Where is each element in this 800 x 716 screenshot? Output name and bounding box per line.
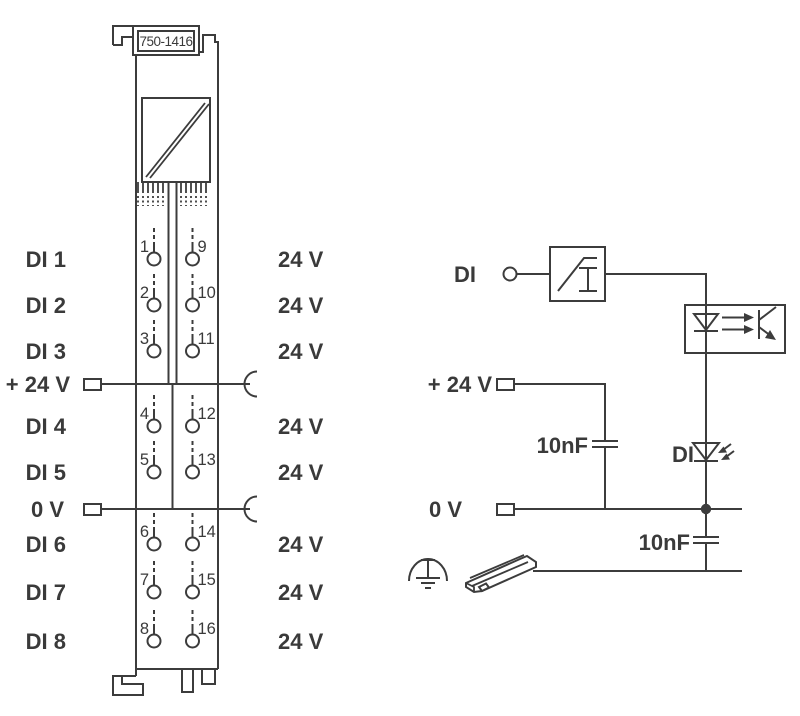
- module-part-number: 750-1416: [139, 34, 192, 49]
- module-foot-middle: [182, 669, 193, 692]
- channel-label: DI 7: [26, 580, 66, 605]
- channel-label: DI 8: [26, 629, 66, 654]
- capacitor-icon: [693, 537, 719, 543]
- flag-connector-24v: [84, 379, 101, 390]
- status-led-label: DI: [672, 442, 694, 467]
- power-row-0v: 0 V: [31, 497, 257, 523]
- schematic-zero-volt-label: 0 V: [429, 497, 462, 522]
- terminal-circle: [148, 420, 161, 433]
- voltage-label: 24 V: [278, 580, 324, 605]
- terminal-number-right: 10: [198, 284, 216, 302]
- voltage-label: 24 V: [278, 293, 324, 318]
- terminal-circle: [148, 538, 161, 551]
- input-terminal-circle: [504, 268, 517, 281]
- channel-label: DI 2: [26, 293, 66, 318]
- io-module: 750-1416 + 24 V 0 V: [6, 26, 324, 695]
- internal-bus-rails-upper: [169, 182, 177, 384]
- voltage-label: 24 V: [278, 629, 324, 654]
- terminal-number-right: 12: [198, 405, 216, 423]
- terminal-number-left: 5: [140, 451, 149, 469]
- channel-row: DI 4 4 12 24 V: [26, 395, 324, 439]
- terminal-circle: [148, 253, 161, 266]
- terminal-circle: [148, 635, 161, 648]
- terminal-number-left: 3: [140, 330, 149, 348]
- terminal-number-left: 4: [140, 405, 149, 423]
- terminal-number-right: 14: [198, 523, 216, 541]
- channel-label: DI 3: [26, 339, 66, 364]
- terminal-number-left: 6: [140, 523, 149, 541]
- optocoupler-icon: [685, 305, 785, 353]
- terminal-circle: [148, 299, 161, 312]
- power-label-0v: 0 V: [31, 497, 64, 522]
- channel-row: DI 7 7 15 24 V: [26, 561, 324, 605]
- terminal-circle: [148, 345, 161, 358]
- voltage-label: 24 V: [278, 339, 324, 364]
- terminal-number-left: 2: [140, 284, 149, 302]
- channel-row: DI 5 5 13 24 V: [26, 441, 324, 485]
- channel-label: DI 1: [26, 247, 66, 272]
- voltage-label: 24 V: [278, 247, 324, 272]
- schematic-supply-label: + 24 V: [428, 372, 493, 397]
- connector-comb-dots: [138, 196, 206, 206]
- channel-label: DI 6: [26, 532, 66, 557]
- shield-cap-label: 10nF: [639, 530, 690, 555]
- earth-ground-icon: [409, 559, 447, 588]
- channel-row: DI 8 8 16 24 V: [26, 610, 324, 654]
- terminal-number-right: 13: [198, 451, 216, 469]
- module-top-latch: [113, 26, 133, 45]
- terminal-number-right: 11: [198, 330, 215, 348]
- channel-row: DI 6 6 14 24 V: [26, 513, 324, 557]
- terminal-number-right: 16: [198, 620, 216, 638]
- terminal-number-right: 9: [198, 238, 207, 256]
- schematic-input-label: DI: [454, 262, 476, 287]
- channel-label: DI 5: [26, 460, 66, 485]
- terminal-circle: [148, 586, 161, 599]
- terminal-number-left: 7: [140, 571, 149, 589]
- connector-comb-teeth: [138, 182, 206, 193]
- wiring-diagram: 750-1416 + 24 V 0 V: [0, 0, 800, 716]
- channel-row: DI 2 2 10 24 V: [26, 274, 324, 318]
- power-label-24v: + 24 V: [6, 372, 71, 397]
- voltage-label: 24 V: [278, 460, 324, 485]
- din-rail-icon: [466, 555, 536, 592]
- terminal-number-left: 8: [140, 620, 149, 638]
- flag-connector-supply: [497, 379, 514, 390]
- power-row-24v: + 24 V: [6, 372, 257, 398]
- channel-row: DI 1 1 9 24 V: [26, 228, 324, 272]
- terminal-circle: [148, 466, 161, 479]
- flag-connector-zero-volt: [497, 504, 514, 515]
- flag-connector-0v: [84, 504, 101, 515]
- electronics-diagonal-icon: [146, 103, 209, 178]
- wiring-diagram-page: 750-1416 + 24 V 0 V: [0, 0, 800, 716]
- led-icon: [693, 443, 734, 461]
- terminal-number-left: 1: [140, 238, 149, 256]
- voltage-label: 24 V: [278, 532, 324, 557]
- input-filter-icon: [550, 247, 605, 301]
- capacitor-icon: [592, 441, 618, 447]
- module-foot-right: [202, 669, 215, 684]
- signal-wire: [605, 274, 706, 509]
- module-foot-left-hook: [113, 676, 143, 695]
- channel-row: DI 3 3 11 24 V: [26, 320, 324, 364]
- channel-schematic: DI + 24 V 10nF DI: [409, 247, 785, 592]
- channel-label: DI 4: [26, 414, 67, 439]
- voltage-label: 24 V: [278, 414, 324, 439]
- filter-cap-label: 10nF: [537, 433, 588, 458]
- terminal-number-right: 15: [198, 571, 216, 589]
